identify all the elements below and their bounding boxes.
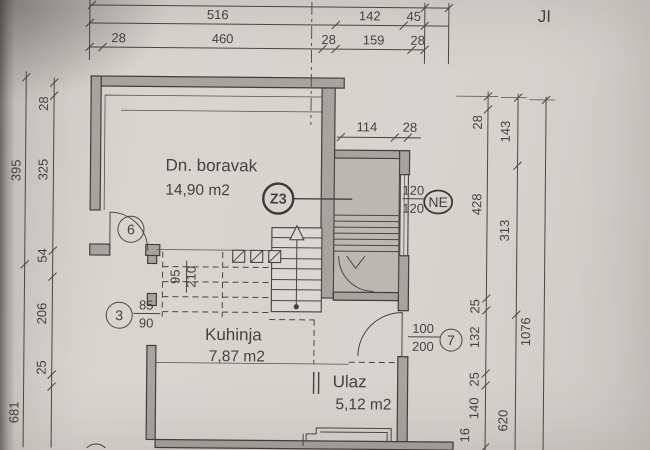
dim-label: 114 bbox=[356, 119, 377, 134]
dim-label: 54 bbox=[35, 248, 50, 263]
dim-label: 45 bbox=[407, 9, 422, 24]
top-dim-guides bbox=[89, 0, 449, 64]
door3-height: 90 bbox=[139, 315, 154, 330]
floor-plan-drawing: 516 142 45 28 460 28 159 28 114 28 395 6… bbox=[0, 0, 650, 450]
dim-label: 28 bbox=[36, 96, 51, 111]
dim-label: 395 bbox=[8, 159, 23, 181]
wall-stair-west bbox=[320, 88, 335, 298]
stair-ref-leader bbox=[293, 199, 352, 200]
stair-bottom-band bbox=[333, 292, 398, 301]
wall-east-3 bbox=[397, 357, 408, 442]
dim-label: 460 bbox=[212, 31, 234, 46]
dim-label: 28 bbox=[410, 33, 425, 48]
right-dim-guides bbox=[456, 96, 555, 100]
dim-label: 206 bbox=[34, 303, 49, 325]
dim-label: 516 bbox=[207, 7, 229, 22]
door7-width: 100 bbox=[412, 321, 434, 336]
dim-label: 159 bbox=[363, 32, 385, 47]
dim-label: 28 bbox=[470, 115, 485, 130]
dim-label: 143 bbox=[498, 121, 513, 143]
dim-label: 28 bbox=[403, 120, 418, 135]
wall-bottom bbox=[155, 440, 453, 450]
door6-width: 95 bbox=[167, 269, 182, 284]
wall-kitchen-west-1 bbox=[148, 255, 157, 263]
dim-label: 140 bbox=[466, 397, 481, 419]
orientation-label: JI bbox=[538, 7, 551, 26]
window-width: 120 bbox=[402, 183, 424, 198]
dim-label: 16 bbox=[457, 428, 472, 443]
door6-marker-label: 6 bbox=[127, 221, 135, 237]
floor-plan-photo: 516 142 45 28 460 28 159 28 114 28 395 6… bbox=[0, 0, 650, 450]
wall-door6-stub-left bbox=[90, 244, 110, 255]
dim-label: 1076 bbox=[518, 317, 533, 346]
dim-label: 142 bbox=[359, 8, 381, 23]
window-ref-label: NE bbox=[428, 194, 448, 210]
dim-label: 325 bbox=[35, 159, 50, 181]
door7-swing bbox=[358, 312, 402, 356]
wall-stair-top bbox=[335, 150, 400, 159]
dim-label: 132 bbox=[467, 326, 482, 348]
room-area-boravak: 14,90 m2 bbox=[165, 182, 230, 200]
kitchen-hob-symbols bbox=[233, 250, 281, 262]
wall-left bbox=[90, 76, 101, 210]
zone-boundary-dashed bbox=[269, 320, 398, 365]
room-name-ulaz: Ulaz bbox=[333, 372, 367, 391]
dimension-labels: 516 142 45 28 460 28 159 28 114 28 395 6… bbox=[6, 5, 536, 443]
door6-height: 210 bbox=[183, 266, 198, 288]
top-dim-ticks bbox=[86, 1, 453, 54]
window-height: 120 bbox=[402, 201, 424, 216]
stair-shaft bbox=[333, 158, 399, 301]
top-dim-lines bbox=[90, 5, 449, 50]
door3-width: 85 bbox=[139, 297, 154, 312]
radiator-symbol bbox=[314, 372, 319, 394]
door7-marker-label: 7 bbox=[447, 332, 455, 348]
dim-label: 25 bbox=[467, 299, 482, 314]
wall-east-2 bbox=[398, 256, 408, 311]
dim-label: 28 bbox=[111, 30, 126, 45]
dim-label: 428 bbox=[469, 193, 484, 215]
door3-marker-label: 3 bbox=[115, 307, 123, 323]
dim-label: 28 bbox=[321, 32, 336, 47]
stair-arrow-line bbox=[296, 235, 297, 307]
stair-ref-label: Z3 bbox=[270, 192, 287, 208]
wall-kitchen-west-3 bbox=[146, 345, 156, 439]
stairs bbox=[271, 158, 399, 313]
dim-label: 681 bbox=[6, 401, 21, 423]
right-dim-lines bbox=[485, 91, 546, 450]
stair-arrow-dot bbox=[294, 304, 299, 309]
dim-label: 620 bbox=[495, 410, 510, 432]
room-name-kuhinja: Kuhinja bbox=[205, 325, 262, 344]
room-area-ulaz: 5,12 m2 bbox=[335, 396, 391, 413]
room-area-kuhinja: 7,87 m2 bbox=[209, 348, 265, 365]
dim-label: 25 bbox=[467, 372, 482, 387]
center-axis-line bbox=[311, 2, 312, 125]
wall-east-1 bbox=[399, 151, 409, 175]
dim-label: 25 bbox=[34, 360, 49, 375]
dim-label: 313 bbox=[497, 220, 512, 242]
bottom-marker-circle-partial bbox=[83, 444, 109, 450]
room-name-boravak: Dn. boravak bbox=[165, 156, 257, 176]
door7-height: 200 bbox=[412, 339, 434, 354]
wall-top bbox=[91, 76, 344, 88]
